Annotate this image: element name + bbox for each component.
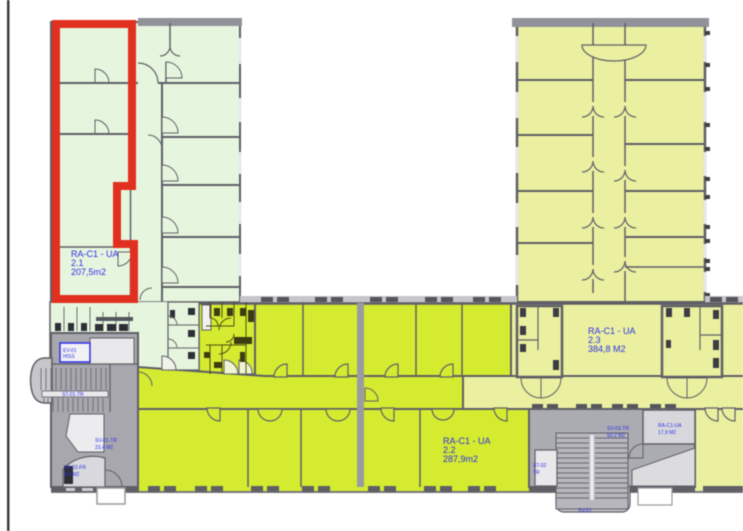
svg-text:SV-03-TR: SV-03-TR [607,426,629,432]
svg-text:ST-02: ST-02 [533,463,547,469]
svg-text:23,4 M2: 23,4 M2 [95,445,113,451]
svg-text:287,9m2: 287,9m2 [443,454,478,464]
svg-text:207,5m2: 207,5m2 [71,267,106,277]
svg-text:SV-02-FR: SV-02-FR [64,465,86,471]
svg-text:RA-C1-UA: RA-C1-UA [658,423,682,429]
svg-text:8,3 M2: 8,3 M2 [64,472,80,478]
svg-text:17,9 M2: 17,9 M2 [658,430,676,436]
svg-text:HISS: HISS [63,354,75,360]
svg-text:384,8 M2: 384,8 M2 [588,344,626,354]
svg-text:SV-01: SV-01 [578,508,592,514]
svg-text:50,2 M2: 50,2 M2 [607,433,625,439]
svg-text:TR: TR [533,470,540,476]
svg-text:SV-01-TR: SV-01-TR [95,438,117,444]
svg-text:ST-01-TR: ST-01-TR [62,392,84,398]
